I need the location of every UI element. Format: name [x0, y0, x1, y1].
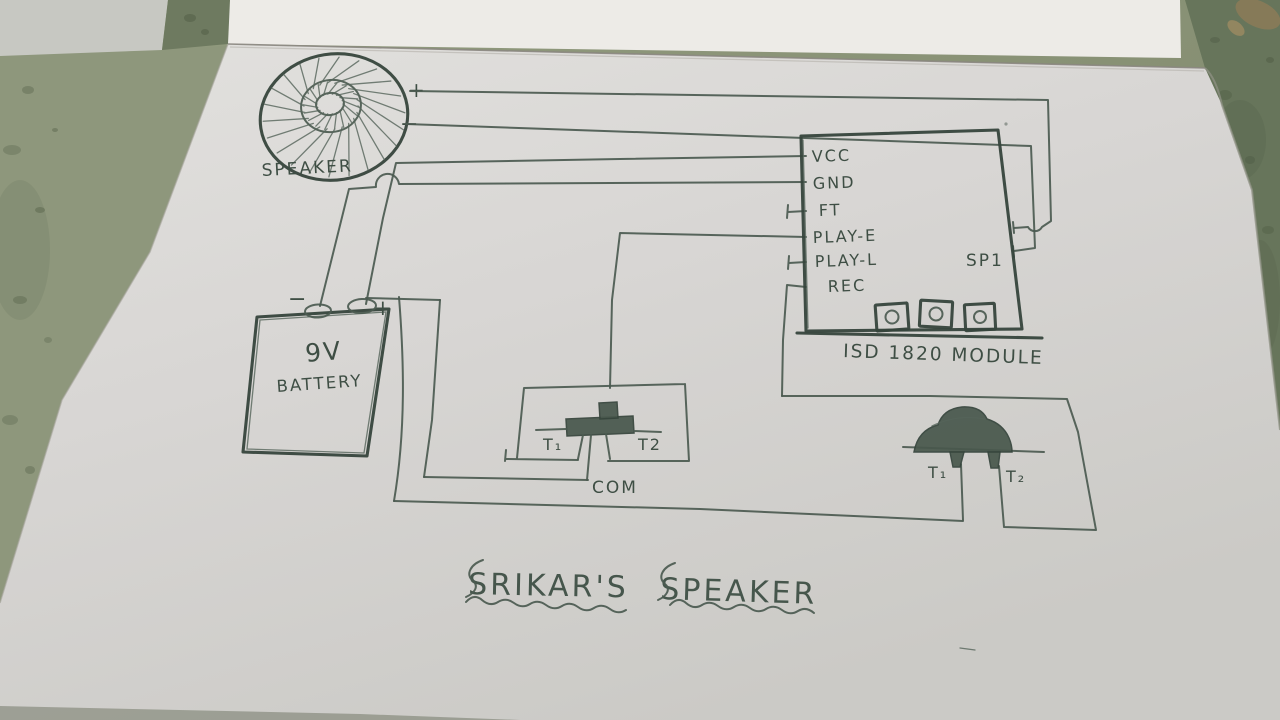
tile-top-left — [0, 0, 168, 56]
pin-label-vcc: VCC — [811, 146, 851, 166]
speaker-plus-sign: + — [408, 78, 427, 102]
pencil-dot — [1004, 122, 1007, 125]
com-label: COM — [592, 478, 638, 498]
pin-label-ft: FT — [818, 200, 841, 220]
play-button-cap — [599, 402, 618, 419]
rec-switch-leg-2 — [988, 452, 1000, 468]
battery-plus-sign: + — [374, 296, 394, 320]
rec-t1-label: T₁ — [927, 463, 948, 482]
battery-voltage-label: 9V — [304, 336, 343, 368]
pin-label-play-l: PLAY-L — [814, 250, 878, 271]
pin-label-play-e: PLAY-E — [812, 226, 877, 247]
rec-t2-label: T₂ — [1005, 467, 1026, 486]
paper-sheet — [0, 44, 1280, 720]
scene: SPEAKER + − − + — [0, 0, 1280, 720]
pin-label-rec: REC — [827, 276, 866, 296]
battery-minus-sign: − — [288, 287, 308, 312]
floor-top-gap — [162, 0, 232, 50]
play-t2-label: T2 — [637, 435, 662, 454]
photo-of-hand-drawn-circuit: SPEAKER + − − + — [0, 0, 1280, 720]
pin-label-gnd: GND — [812, 173, 855, 193]
title-word-1: SRIKAR'S — [468, 567, 629, 605]
sp1-label: SP1 — [966, 251, 1004, 271]
play-t1-label: T₁ — [542, 435, 563, 454]
